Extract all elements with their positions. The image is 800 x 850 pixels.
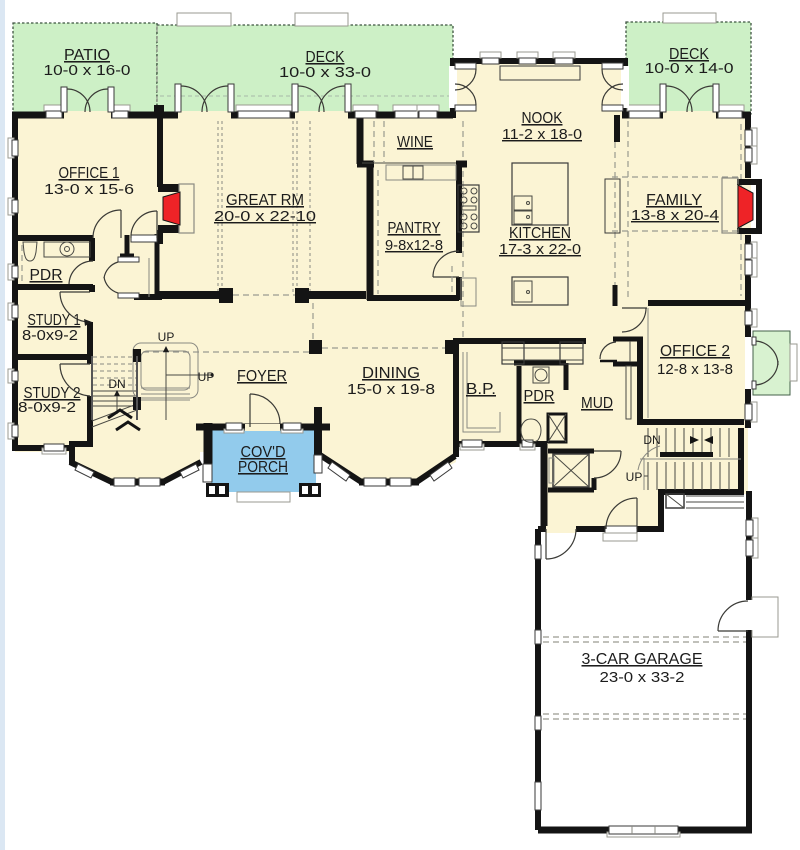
svg-text:23-0 x 33-2: 23-0 x 33-2: [600, 670, 685, 686]
svg-text:UP: UP: [198, 370, 215, 384]
svg-text:17-3 x 22-0: 17-3 x 22-0: [499, 242, 581, 258]
svg-text:10-0 x 14-0: 10-0 x 14-0: [645, 61, 734, 77]
svg-text:DN: DN: [643, 433, 660, 447]
svg-text:PDR: PDR: [30, 267, 63, 284]
svg-text:PDR: PDR: [524, 388, 555, 405]
svg-text:10-0 x 33-0: 10-0 x 33-0: [279, 65, 371, 81]
svg-text:3-CAR GARAGE: 3-CAR GARAGE: [582, 651, 703, 668]
svg-text:11-2 x 18-0: 11-2 x 18-0: [502, 127, 582, 143]
svg-text:12-8 x 13-8: 12-8 x 13-8: [657, 362, 733, 378]
svg-text:WINE: WINE: [397, 134, 433, 151]
svg-text:FAMILY: FAMILY: [646, 192, 702, 209]
svg-text:B.P.: B.P.: [466, 381, 496, 398]
svg-text:MUD: MUD: [581, 395, 613, 412]
svg-text:OFFICE 2: OFFICE 2: [660, 343, 730, 360]
svg-text:UP: UP: [158, 330, 175, 344]
svg-text:13-8 x 20-4: 13-8 x 20-4: [631, 208, 719, 224]
svg-text:STUDY 1: STUDY 1: [28, 312, 81, 329]
svg-text:DECK: DECK: [306, 49, 346, 66]
svg-text:PANTRY: PANTRY: [388, 220, 441, 237]
svg-text:10-0 x 16-0: 10-0 x 16-0: [44, 63, 131, 79]
svg-text:PATIO: PATIO: [64, 47, 110, 64]
svg-text:FOYER: FOYER: [237, 368, 287, 385]
svg-text:9-8x12-8: 9-8x12-8: [385, 238, 443, 254]
svg-text:PORCH: PORCH: [238, 459, 288, 476]
svg-text:8-0x9-2: 8-0x9-2: [22, 328, 78, 344]
svg-text:13-0 x 15-6: 13-0 x 15-6: [44, 182, 134, 198]
svg-text:DN: DN: [108, 377, 125, 391]
svg-text:DINING: DINING: [362, 365, 420, 382]
svg-text:KITCHEN: KITCHEN: [509, 225, 571, 242]
svg-text:15-0 x 19-8: 15-0 x 19-8: [347, 382, 435, 398]
svg-text:UP: UP: [626, 470, 643, 484]
svg-text:GREAT RM: GREAT RM: [226, 192, 304, 209]
svg-text:NOOK: NOOK: [522, 110, 564, 127]
svg-text:20-0 x 22-10: 20-0 x 22-10: [214, 209, 316, 225]
svg-text:8-0x9-2: 8-0x9-2: [18, 400, 76, 416]
svg-text:OFFICE 1: OFFICE 1: [59, 165, 120, 182]
